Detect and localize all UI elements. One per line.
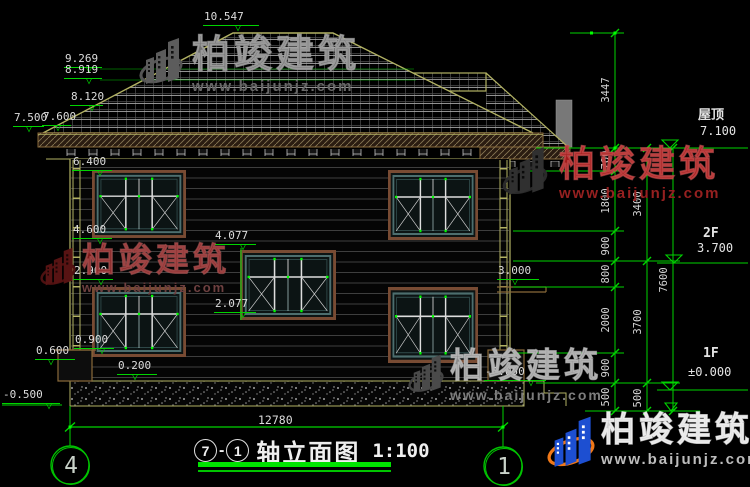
title-underline-thin xyxy=(198,470,391,472)
level-marker: 10.547▽ xyxy=(203,9,259,26)
chain-dim-label: 3447 xyxy=(600,77,612,102)
floor-name: 屋顶 xyxy=(698,104,724,123)
title-scale: 1:100 xyxy=(372,440,429,462)
chain-dim-label: 1800 xyxy=(600,188,612,213)
level-marker: 4.077▽ xyxy=(214,228,256,245)
floor-elevation: ±0.000 xyxy=(688,365,731,379)
chain-dim-label: 2000 xyxy=(600,307,612,332)
level-marker: -0.050▽ xyxy=(484,364,546,381)
title-axis-end-bubble: 1 xyxy=(226,439,249,462)
floor-name: 1F xyxy=(703,346,719,361)
level-marker: 8.120▽ xyxy=(70,89,106,106)
level-marker: 8.919▽ xyxy=(64,62,102,79)
level-marker: 0.200▽ xyxy=(117,358,157,375)
chain-dim-label: 500 xyxy=(632,389,644,408)
floor-name: 2F xyxy=(703,226,719,241)
overall-width-dim: 12780 xyxy=(258,413,293,427)
window-2f-right xyxy=(389,172,476,239)
axis-bubble: 1 xyxy=(485,448,523,486)
axis-bubble: 4 xyxy=(52,447,90,485)
level-marker: 0.600▽ xyxy=(35,343,75,360)
title-dash: - xyxy=(219,442,224,460)
title-underline-thick xyxy=(198,462,391,467)
chain-dim-label: 500 xyxy=(600,388,612,407)
level-marker: 2.900▽ xyxy=(73,263,113,280)
chain-dim-label: 900 xyxy=(600,359,612,378)
chain-dim-label: 900 xyxy=(600,237,612,256)
level-marker: 0.900▽ xyxy=(74,332,114,349)
level-marker: 6.400▽ xyxy=(72,154,112,171)
chain-dim-label: 700 xyxy=(600,151,612,170)
floor-elevation: 3.700 xyxy=(697,241,733,255)
level-marker: -0.500▽ xyxy=(2,387,60,404)
cad-canvas: 10.547▽9.269▽8.919▽8.120▽7.500▽7.600▽6.4… xyxy=(0,0,750,487)
chain-dim-label: 3400 xyxy=(632,191,644,216)
level-marker: 4.600▽ xyxy=(72,222,112,239)
elevation-drawing xyxy=(0,0,750,487)
level-marker: 3.000▽ xyxy=(497,263,539,280)
level-marker: 7.600▽ xyxy=(42,109,78,126)
chain-dim-label: 7600 xyxy=(658,267,670,292)
window-1f-right xyxy=(389,289,476,362)
level-marker: 2.077▽ xyxy=(214,296,256,313)
chain-dim-label: 3700 xyxy=(632,309,644,334)
chain-dim-label: 800 xyxy=(600,265,612,284)
title-axis-start-bubble: 7 xyxy=(194,439,217,462)
floor-elevation: 7.100 xyxy=(700,124,736,138)
